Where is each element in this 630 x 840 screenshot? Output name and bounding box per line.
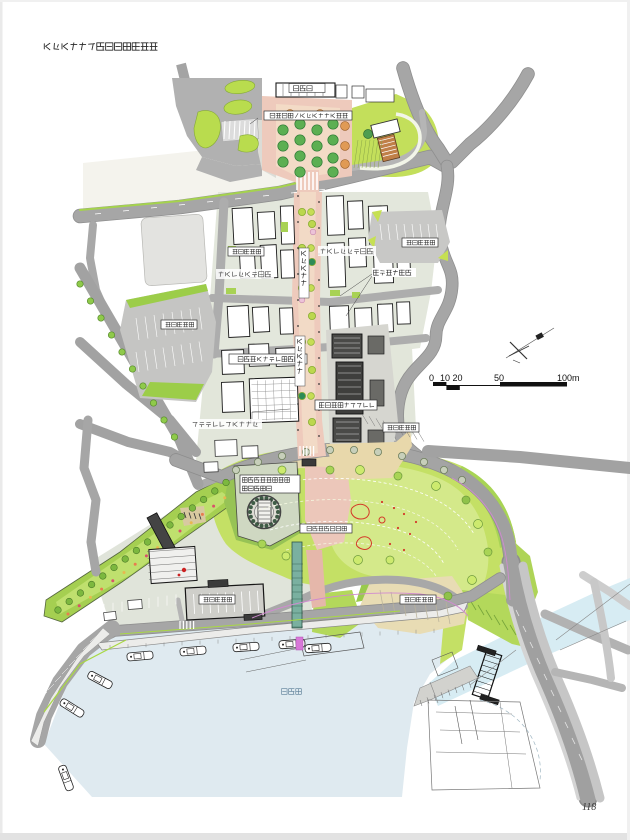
svg-text:50: 50 — [494, 373, 504, 383]
svg-text:118: 118 — [582, 802, 596, 813]
svg-text:100m: 100m — [557, 373, 580, 383]
svg-text:10 20: 10 20 — [440, 373, 463, 383]
svg-text:0: 0 — [429, 373, 434, 383]
